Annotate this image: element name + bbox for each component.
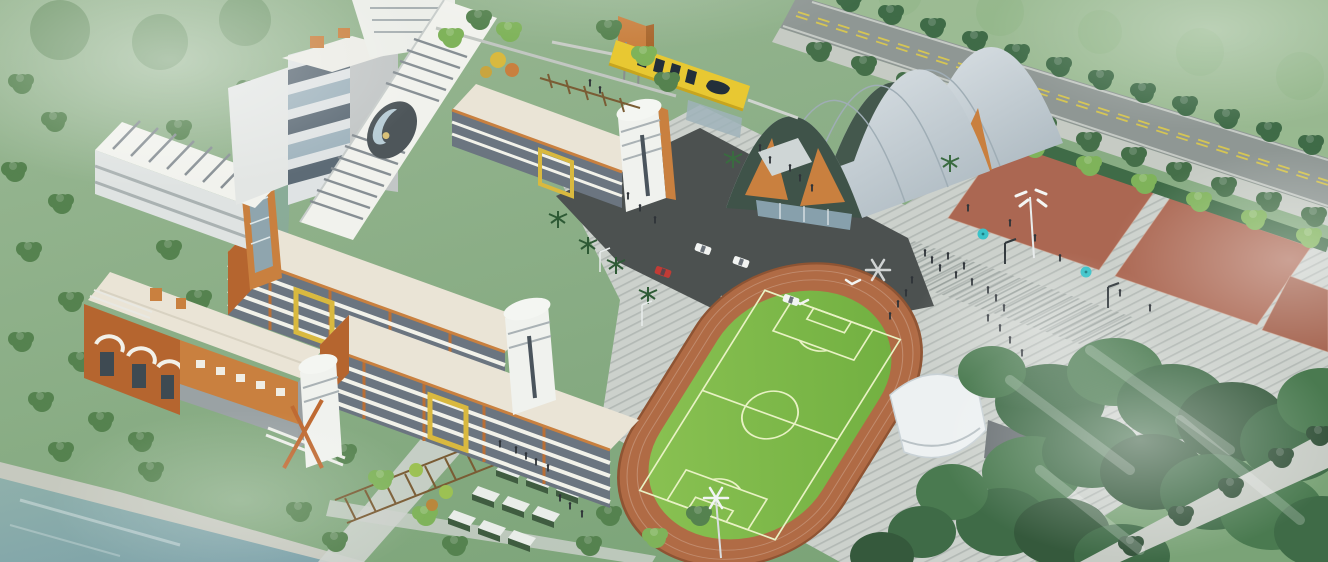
campus-rendering [0,0,1328,562]
campus-rendering-canvas [0,0,1328,562]
